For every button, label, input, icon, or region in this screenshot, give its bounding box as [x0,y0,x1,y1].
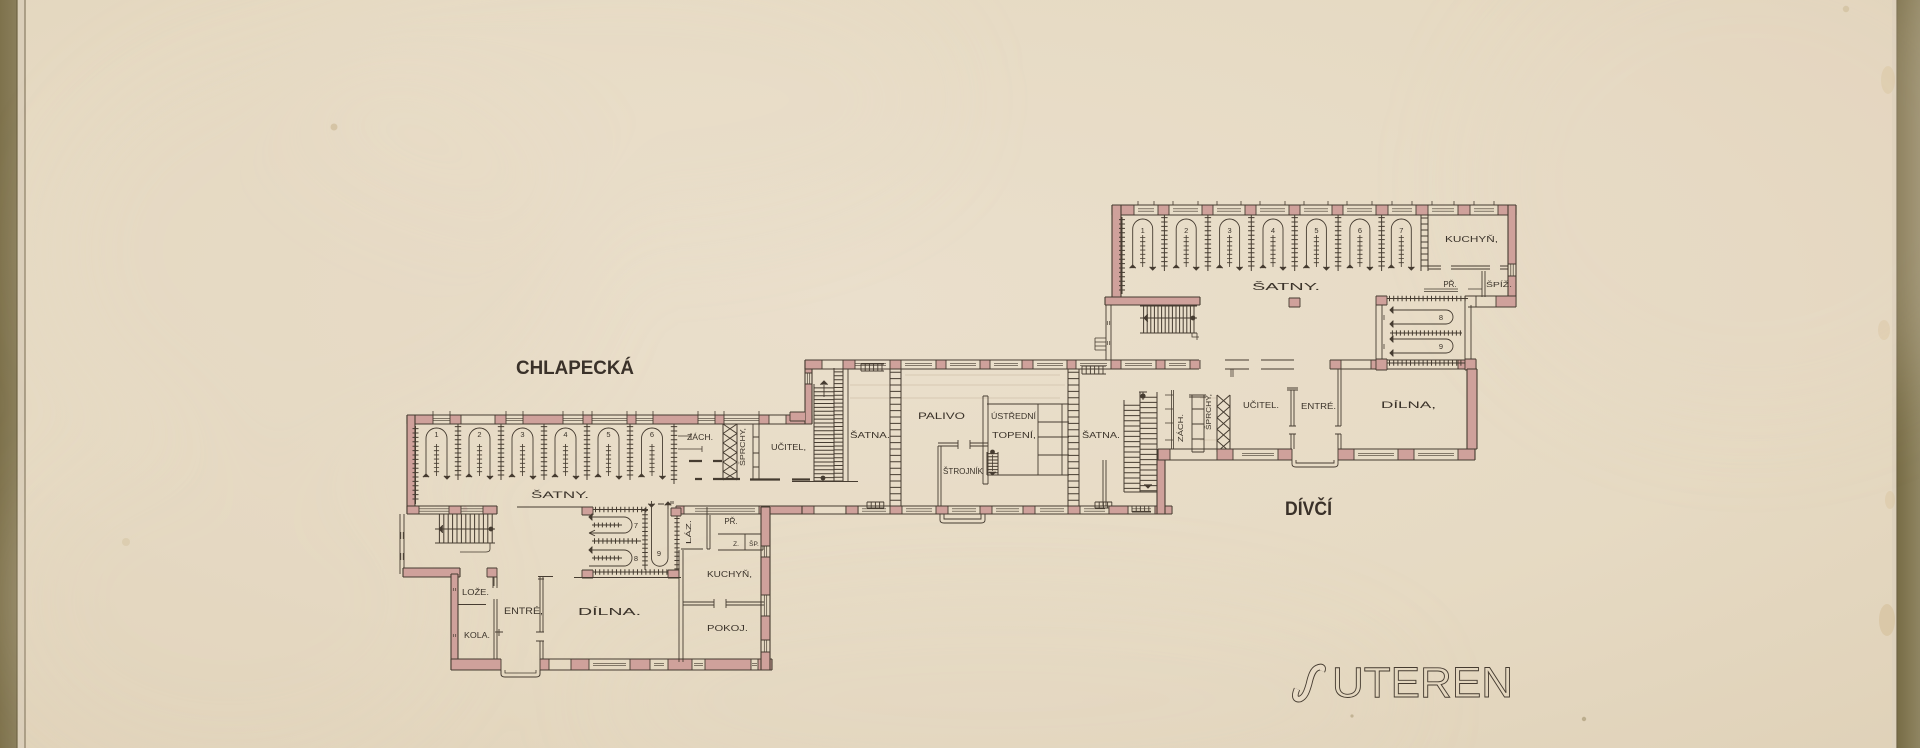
svg-text:PŘ.: PŘ. [1443,280,1456,289]
svg-text:4: 4 [1271,226,1275,235]
svg-text:DÍLNA.: DÍLNA. [578,605,641,618]
svg-text:5: 5 [606,430,610,439]
svg-text:ŠPÍŽ.: ŠPÍŽ. [1486,280,1512,289]
svg-text:UTEREN: UTEREN [1332,659,1513,707]
svg-text:ŠTROJNÍK: ŠTROJNÍK [943,467,984,476]
svg-text:ŠPRCHY,: ŠPRCHY, [1204,394,1213,430]
svg-text:Z.: Z. [733,541,739,548]
svg-text:9: 9 [1439,342,1443,351]
svg-text:KUCHYŇ,: KUCHYŇ, [707,569,752,579]
svg-text:LÁZ.: LÁZ. [684,520,693,544]
svg-text:ENTRÉ.: ENTRÉ. [1301,401,1336,411]
svg-text:DÍLNA,: DÍLNA, [1381,400,1436,411]
svg-text:ŠATNY.: ŠATNY. [1252,280,1320,293]
svg-text:ŠATNY.: ŠATNY. [531,490,589,501]
svg-text:ZÁCH.: ZÁCH. [1176,414,1185,442]
svg-text:TOPENÍ,: TOPENÍ, [992,430,1036,440]
svg-text:KUCHYŇ,: KUCHYŇ, [1445,234,1498,244]
svg-text:8: 8 [1439,313,1443,322]
svg-text:1: 1 [434,430,438,439]
svg-text:ÚSTŘEDNÍ: ÚSTŘEDNÍ [991,411,1037,421]
svg-text:5: 5 [1314,226,1318,235]
svg-text:9: 9 [657,549,661,558]
svg-text:1: 1 [1141,226,1145,235]
svg-text:PALIVO: PALIVO [918,411,965,422]
svg-text:ŠPRCHY,: ŠPRCHY, [738,428,747,466]
svg-text:2: 2 [1184,226,1188,235]
svg-text:8: 8 [634,554,638,563]
svg-text:3: 3 [520,430,524,439]
svg-text:POKOJ.: POKOJ. [707,623,748,633]
svg-text:6: 6 [1358,226,1362,235]
svg-text:ŠATNA.: ŠATNA. [850,430,890,440]
svg-text:4: 4 [563,430,567,439]
svg-text:KOLA.: KOLA. [464,631,490,640]
svg-text:3: 3 [1228,226,1232,235]
svg-text:UČITEL.: UČITEL. [1243,401,1279,410]
svg-text:7: 7 [634,521,638,530]
svg-text:ZÁCH.: ZÁCH. [687,433,713,442]
svg-text:DÍVČÍ: DÍVČÍ [1285,498,1333,520]
svg-text:UČITEL,: UČITEL, [771,443,806,452]
svg-text:6: 6 [650,430,654,439]
svg-text:ENTRÉ,: ENTRÉ, [504,606,543,616]
svg-text:ŠATNA.: ŠATNA. [1082,430,1120,440]
svg-text:PŘ.: PŘ. [724,517,737,526]
svg-text:CHLAPECKÁ: CHLAPECKÁ [516,357,634,379]
svg-text:7: 7 [1399,226,1403,235]
svg-text:LOŽE.: LOŽE. [462,588,489,597]
svg-text:ŠP.: ŠP. [749,539,759,548]
svg-text:2: 2 [477,430,481,439]
